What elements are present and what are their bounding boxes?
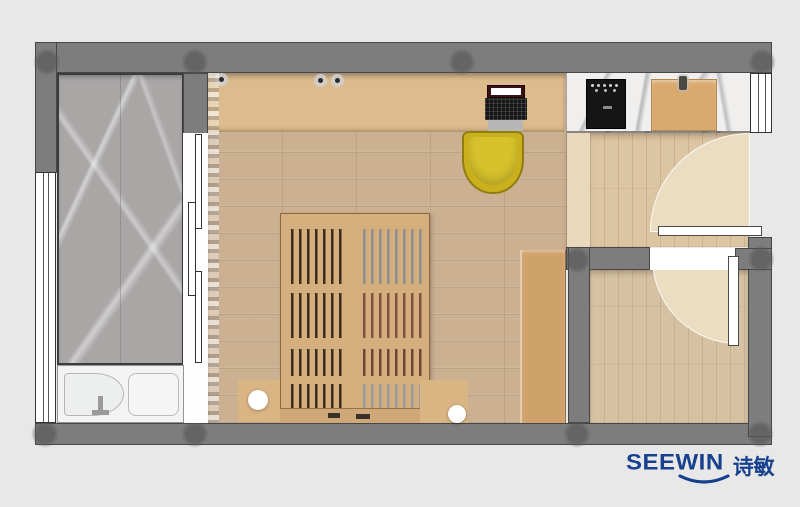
brand-wordmark: SEEWIN (626, 450, 724, 476)
column-icon (448, 48, 476, 76)
window-mullion (758, 74, 759, 132)
column-icon (181, 420, 209, 448)
wardrobe (520, 250, 566, 423)
floor-plan-canvas: SEEWIN 诗敏 (0, 0, 800, 507)
bed-bench (268, 408, 430, 423)
sliding-door-panel (195, 134, 202, 229)
laptop-keyboard (485, 98, 527, 120)
wall-top (35, 42, 772, 73)
brand-logo: SEEWIN 诗敏 (626, 449, 775, 481)
window-left (35, 172, 56, 423)
bedroom2-door-leaf (728, 256, 739, 346)
stool (248, 390, 268, 410)
bathtub (57, 365, 184, 423)
brand-cjk: 诗敏 (733, 451, 775, 481)
desk-grommet-icon (335, 78, 340, 83)
column-icon (31, 420, 59, 448)
bed-slats (363, 229, 423, 284)
column-icon (181, 48, 209, 76)
desk-grommet-icon (219, 77, 224, 82)
bench-handle-icon (328, 413, 340, 418)
bed-slats (363, 384, 423, 409)
bathtub-basin (128, 373, 179, 416)
window-top-right (750, 73, 772, 133)
laptop-screen-panel (491, 88, 521, 95)
stool (448, 405, 466, 423)
bed-slat-panel-right (361, 229, 425, 409)
window-mullion (765, 74, 766, 132)
cooktop (586, 79, 626, 129)
desk-grommet-icon (318, 78, 323, 83)
bed-slats (291, 349, 343, 376)
entry-door-leaf (658, 226, 762, 236)
column-icon (748, 48, 776, 76)
bed-slats (363, 349, 423, 376)
wall-stub-balcony (183, 73, 208, 134)
logo-swoosh-icon (676, 474, 732, 487)
window-mullion (48, 173, 49, 422)
bed-slats (291, 229, 343, 284)
bedroom2-door-opening (650, 248, 735, 270)
wall-bottom (35, 423, 772, 445)
column-icon (563, 246, 591, 274)
column-icon (746, 420, 774, 448)
chair-seat (469, 137, 517, 185)
column-icon (563, 420, 591, 448)
column-icon (747, 245, 775, 273)
bed-slat-panel-left (289, 229, 345, 409)
bed-slats (291, 384, 343, 409)
window-mullion (43, 173, 44, 422)
bathroom-marble-floor (57, 73, 184, 365)
laptop-base (488, 120, 523, 131)
laptop-screen (487, 85, 525, 98)
bench-handle-icon (356, 414, 370, 419)
faucet-icon (92, 410, 109, 415)
bed (280, 213, 430, 417)
board-knob-icon (679, 76, 687, 90)
bed-slats (363, 293, 423, 338)
hallway-floor (566, 133, 590, 247)
bed-slats (291, 293, 343, 338)
cooktop-mark (603, 106, 612, 109)
cooktop-controls-icon (591, 84, 594, 87)
desk-chair (462, 131, 524, 194)
column-icon (33, 48, 61, 76)
sliding-door-panel (195, 271, 202, 363)
curtain (208, 73, 219, 423)
